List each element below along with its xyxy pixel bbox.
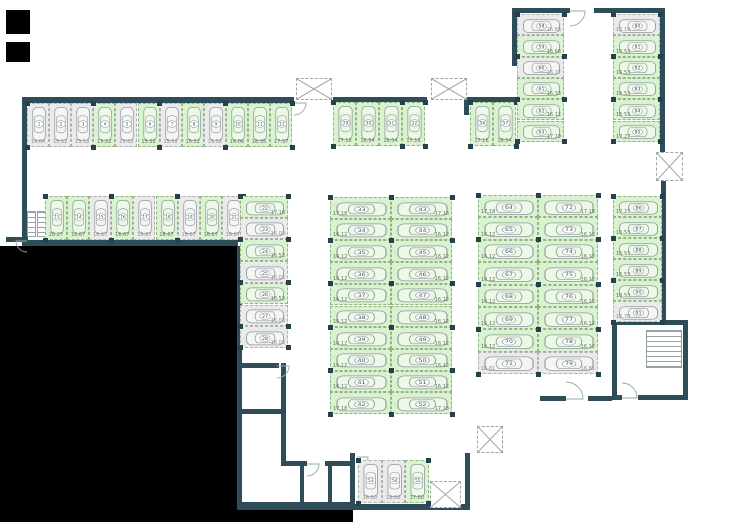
parking-space[interactable]: 7116.81: [478, 352, 538, 374]
parking-space[interactable]: 4016.12: [330, 349, 391, 371]
wall: [328, 466, 332, 504]
parking-space[interactable]: 5217.18: [391, 392, 452, 414]
space-size-label: 17.16: [334, 139, 355, 144]
column-pillar: [596, 282, 601, 287]
parking-space[interactable]: 215.52: [49, 103, 71, 147]
parking-space[interactable]: 2316.03: [240, 218, 288, 240]
svg-text:20: 20: [209, 214, 214, 219]
space-size-label: 16.65: [547, 28, 561, 33]
parking-space[interactable]: 114.04: [27, 103, 49, 147]
column-pillar: [536, 282, 541, 287]
car-icon: 14: [71, 199, 87, 235]
svg-text:66: 66: [505, 250, 514, 255]
parking-space[interactable]: 2416.53: [240, 239, 288, 261]
svg-text:43: 43: [419, 207, 427, 212]
svg-text:50: 50: [419, 359, 428, 364]
svg-text:25: 25: [262, 271, 268, 277]
space-size-label: 15.52: [116, 140, 136, 145]
column-pillar: [658, 97, 663, 102]
space-size-label: 16.12: [481, 300, 495, 305]
space-size-label: 15.52: [139, 140, 159, 145]
wall: [300, 466, 304, 504]
column-pillar: [611, 278, 616, 283]
space-size-label: 17.16: [471, 139, 492, 144]
car-icon: 16: [115, 199, 131, 235]
svg-text:26: 26: [262, 292, 268, 298]
column-pillar: [476, 372, 481, 377]
parking-space[interactable]: 8416.53: [613, 99, 660, 120]
svg-text:14: 14: [77, 214, 82, 219]
void-area: [0, 246, 237, 522]
column-pillar: [611, 139, 616, 144]
column-pillar: [660, 320, 665, 325]
column-pillar: [450, 195, 455, 200]
parking-space[interactable]: 6716.12: [478, 262, 538, 284]
svg-text:15: 15: [99, 214, 104, 219]
parking-space[interactable]: 6516.12: [478, 217, 538, 239]
column-pillar: [389, 325, 394, 330]
parking-space[interactable]: 8816.53: [613, 238, 662, 259]
space-size-label: 17.37: [271, 140, 291, 145]
space-size-label: 16.27: [547, 71, 561, 76]
parking-space[interactable]: 6816.12: [478, 285, 538, 307]
column-pillar: [328, 238, 333, 243]
parking-space[interactable]: 1116.35: [248, 103, 270, 147]
svg-text:4: 4: [104, 121, 107, 126]
parking-space[interactable]: 2917.16: [333, 102, 356, 146]
column-pillar: [286, 324, 291, 329]
space-size-label: 16.53: [616, 294, 630, 299]
ventilation-shaft-icon: [296, 78, 332, 100]
column-pillar: [43, 194, 48, 199]
svg-text:37: 37: [358, 294, 366, 299]
svg-text:7: 7: [170, 121, 173, 126]
space-size-label: 16.12: [581, 233, 595, 238]
space-size-label: 16.66: [547, 50, 561, 55]
column-pillar: [611, 320, 616, 325]
parking-space[interactable]: 2616.53: [240, 283, 288, 305]
svg-text:46: 46: [419, 272, 428, 277]
wall: [237, 363, 279, 368]
parking-floor-plan: 114.04 215.52 315.52 415.52 515.52 615.5…: [0, 0, 754, 522]
svg-text:87: 87: [635, 226, 641, 231]
svg-text:19: 19: [187, 214, 192, 219]
space-size-label: 17.18: [435, 212, 449, 217]
column-pillar: [515, 139, 520, 144]
column-pillar: [658, 139, 663, 144]
svg-text:41: 41: [358, 381, 366, 386]
parking-space[interactable]: 5517.00: [405, 460, 429, 503]
column-pillar: [331, 144, 336, 149]
parking-space[interactable]: 2716.03: [240, 305, 288, 327]
parking-space[interactable]: 515.52: [115, 103, 137, 147]
space-size-label: 16.12: [581, 255, 595, 260]
parking-space[interactable]: 6317.19: [517, 121, 564, 142]
svg-text:76: 76: [565, 295, 574, 300]
space-size-label: 16.03: [271, 319, 285, 324]
space-size-label: 16.12: [481, 322, 495, 327]
parking-space[interactable]: 8617.27: [613, 196, 662, 217]
column-pillar: [562, 139, 567, 144]
column-pillar: [562, 12, 567, 17]
svg-text:58: 58: [539, 23, 545, 29]
space-size-label: 17.18: [271, 211, 285, 216]
svg-text:33: 33: [358, 207, 366, 212]
column-pillar: [328, 325, 333, 330]
column-pillar: [468, 144, 473, 149]
space-size-label: 17.27: [616, 210, 630, 215]
svg-text:49: 49: [419, 337, 428, 342]
column-pillar: [400, 100, 405, 105]
parking-space[interactable]: 7016.12: [478, 329, 538, 351]
parking-space[interactable]: 3816.12: [330, 306, 391, 328]
column-pillar: [157, 145, 162, 150]
car-icon: 31: [383, 105, 400, 141]
space-size-label: 17.19: [547, 135, 561, 140]
wall: [612, 320, 617, 400]
space-size-label: 17.27: [616, 135, 630, 140]
space-size-label: 16.12: [581, 345, 595, 350]
svg-text:59: 59: [539, 45, 545, 51]
svg-text:40: 40: [358, 359, 367, 364]
parking-space[interactable]: 4116.12: [330, 371, 391, 393]
parking-space[interactable]: 4516.12: [391, 240, 452, 262]
space-size-label: 16.03: [271, 341, 285, 346]
parking-space[interactable]: 8116.53: [613, 35, 660, 56]
parking-space[interactable]: 7416.12: [538, 240, 598, 262]
car-icon: 32: [406, 105, 423, 141]
column-pillar: [328, 281, 333, 286]
parking-space[interactable]: 4616.12: [391, 262, 452, 284]
void-area: [6, 42, 30, 62]
car-icon: 9: [208, 106, 224, 142]
wall: [588, 396, 612, 401]
space-size-label: 16.12: [435, 320, 449, 325]
parking-space[interactable]: 6417.18: [478, 195, 538, 217]
car-icon: 20: [204, 199, 220, 235]
parking-space[interactable]: 2516.03: [240, 261, 288, 283]
parking-space[interactable]: 615.52: [138, 103, 160, 147]
parking-space[interactable]: 8316.53: [613, 78, 660, 99]
parking-space[interactable]: 1516.67: [89, 196, 111, 240]
column-pillar: [596, 327, 601, 332]
svg-text:73: 73: [565, 228, 573, 233]
svg-text:57: 57: [503, 121, 509, 127]
wall: [638, 395, 688, 400]
stairs-icon: [27, 211, 36, 237]
parking-space[interactable]: 1616.67: [111, 196, 133, 240]
space-size-label: 16.54: [380, 139, 401, 144]
space-size-label: 16.12: [435, 298, 449, 303]
column-pillar: [43, 238, 48, 243]
svg-text:22: 22: [262, 206, 268, 212]
parking-space[interactable]: 3416.12: [330, 219, 391, 241]
column-pillar: [290, 101, 295, 106]
car-icon: 30: [360, 105, 377, 141]
space-size-label: 16.81: [481, 367, 495, 372]
column-pillar: [611, 97, 616, 102]
car-icon: 7: [164, 106, 180, 142]
parking-space[interactable]: 8716.53: [613, 217, 662, 238]
space-size-label: 15.52: [50, 140, 70, 145]
car-icon: 15: [93, 199, 109, 235]
svg-text:81: 81: [635, 45, 641, 51]
column-pillar: [331, 100, 336, 105]
space-size-label: 16.33: [547, 92, 561, 97]
svg-text:28: 28: [262, 336, 268, 342]
space-size-label: 16.67: [112, 233, 132, 238]
parking-space[interactable]: 2816.03: [240, 326, 288, 348]
svg-text:52: 52: [419, 403, 427, 408]
parking-space[interactable]: 4716.12: [391, 284, 452, 306]
svg-text:79: 79: [565, 362, 574, 367]
door-arc: [307, 464, 319, 476]
space-size-label: 16.53: [616, 50, 630, 55]
parking-space[interactable]: 8517.27: [613, 121, 660, 142]
parking-space[interactable]: 9116.78: [613, 301, 662, 322]
parking-space[interactable]: 3616.12: [330, 262, 391, 284]
space-size-label: 16.78: [616, 315, 630, 320]
wall: [237, 409, 283, 414]
column-pillar: [562, 97, 567, 102]
svg-text:83: 83: [635, 87, 641, 93]
column-pillar: [356, 458, 361, 463]
svg-text:88: 88: [635, 247, 641, 252]
parking-space[interactable]: 7316.12: [538, 217, 598, 239]
parking-space[interactable]: 7716.12: [538, 307, 598, 329]
parking-space[interactable]: 7616.12: [538, 285, 598, 307]
column-pillar: [286, 237, 291, 242]
parking-space[interactable]: 1416.67: [67, 196, 89, 240]
parking-space[interactable]: 6616.12: [478, 240, 538, 262]
svg-text:34: 34: [358, 229, 367, 234]
wall: [660, 8, 665, 152]
parking-space[interactable]: 3217.16: [402, 102, 425, 146]
column-pillar: [611, 236, 616, 241]
space-size-label: 16.53: [616, 231, 630, 236]
car-icon: 17: [137, 199, 153, 235]
svg-text:74: 74: [565, 250, 574, 255]
parking-space[interactable]: 8916.53: [613, 259, 662, 280]
svg-text:86: 86: [635, 205, 641, 210]
svg-text:32: 32: [412, 121, 418, 127]
svg-text:2: 2: [60, 121, 63, 126]
space-size-label: 16.53: [616, 273, 630, 278]
wall: [22, 240, 238, 246]
wall: [281, 363, 286, 465]
svg-text:56: 56: [480, 121, 486, 127]
column-pillar: [223, 101, 228, 106]
car-icon: 12: [274, 106, 290, 142]
space-size-label: 16.12: [333, 342, 347, 347]
space-size-label: 20.27: [46, 233, 66, 238]
parking-space[interactable]: 1217.37: [270, 103, 292, 147]
parking-space[interactable]: 7516.12: [538, 262, 598, 284]
column-pillar: [423, 144, 428, 149]
column-pillar: [238, 324, 243, 329]
parking-space[interactable]: 3716.12: [330, 284, 391, 306]
parking-space[interactable]: 715.52: [160, 103, 182, 147]
column-pillar: [476, 327, 481, 332]
parking-space[interactable]: 3317.18: [330, 197, 391, 219]
space-size-label: 14.04: [28, 140, 48, 145]
svg-text:45: 45: [419, 251, 427, 256]
column-pillar: [658, 54, 663, 59]
space-size-label: 16.12: [333, 320, 347, 325]
svg-text:35: 35: [358, 251, 366, 256]
parking-space[interactable]: 915.52: [204, 103, 226, 147]
parking-space[interactable]: 1016.06: [226, 103, 248, 147]
svg-text:39: 39: [358, 337, 367, 342]
column-pillar: [450, 412, 455, 417]
space-size-label: 17.18: [581, 210, 595, 215]
parking-space[interactable]: 5716.54: [493, 102, 516, 146]
space-size-label: 16.12: [333, 364, 347, 369]
parking-space[interactable]: 4416.12: [391, 219, 452, 241]
parking-space[interactable]: 1320.27: [45, 196, 67, 240]
parking-space[interactable]: 3916.12: [330, 327, 391, 349]
column-pillar: [658, 12, 663, 17]
space-size-label: 16.54: [494, 139, 515, 144]
svg-text:9: 9: [215, 121, 218, 126]
column-pillar: [423, 100, 428, 105]
column-pillar: [91, 101, 96, 106]
parking-space[interactable]: 5916.66: [517, 35, 564, 56]
parking-space[interactable]: 315.52: [71, 103, 93, 147]
parking-space[interactable]: 7217.18: [538, 195, 598, 217]
svg-text:47: 47: [419, 294, 427, 299]
svg-text:91: 91: [635, 310, 641, 315]
car-icon: 55: [409, 463, 427, 498]
column-pillar: [175, 238, 180, 243]
parking-space[interactable]: 815.52: [182, 103, 204, 147]
car-icon: 4: [97, 106, 113, 142]
column-pillar: [25, 145, 30, 150]
space-size-label: 16.12: [333, 385, 347, 390]
space-size-label: 17.16: [403, 139, 424, 144]
parking-space[interactable]: 6916.12: [478, 307, 538, 329]
car-icon: 10: [230, 106, 246, 142]
column-pillar: [476, 193, 481, 198]
parking-space[interactable]: 5416.00: [382, 460, 406, 503]
space-size-label: 16.12: [547, 113, 561, 118]
parking-space[interactable]: 2016.67: [200, 196, 222, 240]
space-size-label: 16.67: [134, 233, 154, 238]
parking-space[interactable]: 2217.18: [240, 196, 288, 218]
parking-space[interactable]: 5016.12: [391, 349, 452, 371]
parking-space[interactable]: 3016.54: [356, 102, 379, 146]
parking-space[interactable]: 4916.12: [391, 327, 452, 349]
parking-space[interactable]: 5116.12: [391, 371, 452, 393]
svg-text:10: 10: [235, 121, 240, 126]
parking-space[interactable]: 1916.67: [178, 196, 200, 240]
svg-text:12: 12: [280, 121, 285, 126]
space-size-label: 17.18: [333, 212, 347, 217]
parking-space[interactable]: 3116.54: [379, 102, 402, 146]
svg-text:11: 11: [257, 121, 262, 126]
space-size-label: 16.53: [616, 92, 630, 97]
column-pillar: [611, 12, 616, 17]
svg-text:55: 55: [415, 478, 421, 484]
parking-space[interactable]: 7916.81: [538, 352, 598, 374]
parking-space[interactable]: 415.52: [93, 103, 115, 147]
space-size-label: 16.35: [249, 140, 269, 145]
parking-space[interactable]: 5316.00: [358, 460, 382, 503]
column-pillar: [515, 97, 520, 102]
svg-text:44: 44: [419, 229, 428, 234]
column-pillar: [328, 368, 333, 373]
parking-space[interactable]: 5617.16: [470, 102, 493, 146]
space-size-label: 16.53: [616, 252, 630, 257]
space-size-label: 16.12: [435, 342, 449, 347]
space-size-label: 16.12: [481, 345, 495, 350]
ventilation-shaft-icon: [477, 426, 503, 453]
parking-space[interactable]: 1816.67: [156, 196, 178, 240]
parking-space[interactable]: 6016.27: [517, 57, 564, 78]
column-pillar: [290, 145, 295, 150]
column-pillar: [660, 236, 665, 241]
svg-text:89: 89: [635, 268, 641, 273]
parking-space[interactable]: 5816.65: [517, 14, 564, 35]
column-pillar: [476, 282, 481, 287]
parking-space[interactable]: 9016.53: [613, 280, 662, 301]
svg-text:18: 18: [165, 214, 170, 219]
column-pillar: [389, 195, 394, 200]
space-size-label: 16.12: [333, 233, 347, 238]
parking-space[interactable]: 3516.12: [330, 240, 391, 262]
svg-text:24: 24: [262, 249, 268, 255]
svg-text:36: 36: [358, 272, 367, 277]
car-icon: 53: [362, 463, 380, 498]
parking-space[interactable]: 4816.12: [391, 306, 452, 328]
space-size-label: 16.12: [581, 278, 595, 283]
car-icon: 6: [142, 106, 158, 142]
wall: [683, 320, 688, 400]
column-pillar: [91, 145, 96, 150]
wall: [465, 453, 470, 510]
column-pillar: [450, 238, 455, 243]
void-area: [6, 10, 30, 34]
parking-space[interactable]: 7816.12: [538, 329, 598, 351]
space-size-label: 16.54: [357, 139, 378, 144]
ventilation-shaft-icon: [431, 78, 467, 100]
column-pillar: [660, 278, 665, 283]
parking-space[interactable]: 6216.12: [517, 99, 564, 120]
svg-text:51: 51: [419, 381, 427, 386]
parking-space[interactable]: 4317.18: [391, 197, 452, 219]
svg-text:27: 27: [262, 314, 268, 320]
svg-text:54: 54: [391, 478, 397, 484]
parking-space[interactable]: 6116.33: [517, 78, 564, 99]
column-pillar: [389, 412, 394, 417]
column-pillar: [468, 100, 473, 105]
column-pillar: [223, 145, 228, 150]
car-icon: 18: [160, 199, 176, 235]
parking-space[interactable]: 8216.53: [613, 57, 660, 78]
parking-space[interactable]: 1716.67: [133, 196, 155, 240]
car-icon: 57: [497, 105, 514, 141]
svg-text:71: 71: [505, 362, 513, 367]
column-pillar: [175, 194, 180, 199]
space-size-label: 16.12: [581, 322, 595, 327]
svg-text:29: 29: [343, 121, 349, 127]
wall: [237, 502, 355, 510]
space-size-label: 16.53: [271, 297, 285, 302]
parking-space[interactable]: 8016.19: [613, 14, 660, 35]
parking-space[interactable]: 4217.18: [330, 392, 391, 414]
car-icon: 11: [252, 106, 268, 142]
car-icon: 13: [49, 199, 65, 235]
